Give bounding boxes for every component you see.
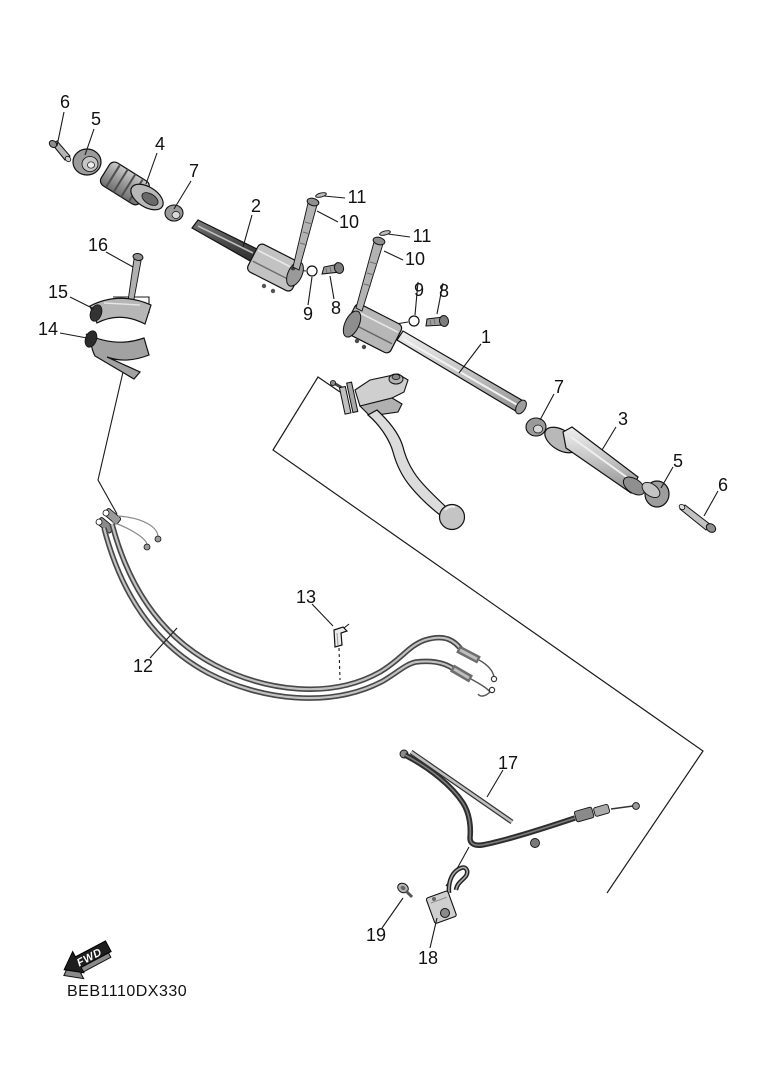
screw-10-a [293, 197, 320, 270]
callout-11-b: 11 [413, 226, 432, 246]
callout-12: 12 [133, 656, 153, 676]
grip-3 [540, 422, 647, 499]
routing-lines [95, 270, 469, 886]
clip-position-line [339, 648, 340, 680]
callout-2: 2 [251, 196, 261, 216]
parts-diagram-page: 6 5 4 7 2 16 15 14 11 10 11 10 9 8 9 8 1… [0, 0, 771, 1065]
right-grip-set [526, 418, 717, 534]
lever-blade [368, 410, 447, 515]
callout-9-b: 9 [414, 280, 424, 300]
parts-diagram: 6 5 4 7 2 16 15 14 11 10 11 10 9 8 9 8 1… [0, 0, 771, 1065]
bolt-6-left [48, 139, 72, 163]
callout-13: 13 [296, 587, 316, 607]
washer-11-a [315, 192, 327, 199]
callout-5-left: 5 [91, 109, 101, 129]
cable-adjuster [574, 803, 639, 823]
part-callouts: 6 5 4 7 2 16 15 14 11 10 11 10 9 8 9 8 1… [38, 92, 728, 968]
callout-4: 4 [155, 134, 165, 154]
callout-18: 18 [418, 948, 438, 968]
callout-17: 17 [498, 753, 518, 773]
callout-5-right: 5 [673, 451, 683, 471]
callout-16: 16 [88, 235, 108, 255]
callout-14: 14 [38, 319, 58, 339]
cable-clip-13 [334, 624, 349, 647]
callout-7-left: 7 [189, 161, 199, 181]
bar-clamp-set [83, 253, 151, 379]
bracket-18 [426, 868, 467, 924]
clutch-cable-17 [396, 750, 639, 924]
screw-10-b [356, 236, 386, 311]
bolt-19 [396, 881, 412, 897]
washer-11-b [379, 230, 391, 237]
bolt-8-b [426, 315, 449, 327]
grip-4 [98, 160, 167, 215]
diagram-code: BEB1110DX330 [67, 983, 187, 1000]
nut-7-right [526, 418, 546, 436]
callout-6-right: 6 [718, 475, 728, 495]
clamp-14-lower [83, 329, 149, 379]
callout-19: 19 [366, 925, 386, 945]
callout-7-right: 7 [554, 377, 564, 397]
cable-nut [531, 839, 540, 848]
cable-lower-ends [452, 649, 497, 696]
clamp-15-upper [88, 298, 151, 324]
bolt-8-a [322, 261, 345, 274]
washer-9-b [409, 316, 419, 326]
cap-5-left [73, 149, 101, 175]
fasteners [293, 192, 449, 327]
nut-7-left [165, 205, 183, 221]
lever-ball-end [440, 505, 465, 530]
callout-10-b: 10 [405, 249, 425, 269]
callout-10-a: 10 [339, 212, 359, 232]
callout-15: 15 [48, 282, 68, 302]
callout-6-left: 6 [60, 92, 70, 112]
bolt-6-right [678, 503, 717, 534]
callout-11-a: 11 [348, 187, 367, 207]
fwd-arrow: FWD [56, 936, 116, 986]
callout-9-a: 9 [303, 304, 313, 324]
callout-8-b: 8 [439, 281, 449, 301]
washer-9-a [307, 266, 317, 276]
handlebar-2 [192, 220, 307, 293]
clutch-lever-assembly [330, 374, 464, 530]
callout-3: 3 [618, 409, 628, 429]
callout-1: 1 [481, 327, 491, 347]
callout-8-a: 8 [331, 298, 341, 318]
